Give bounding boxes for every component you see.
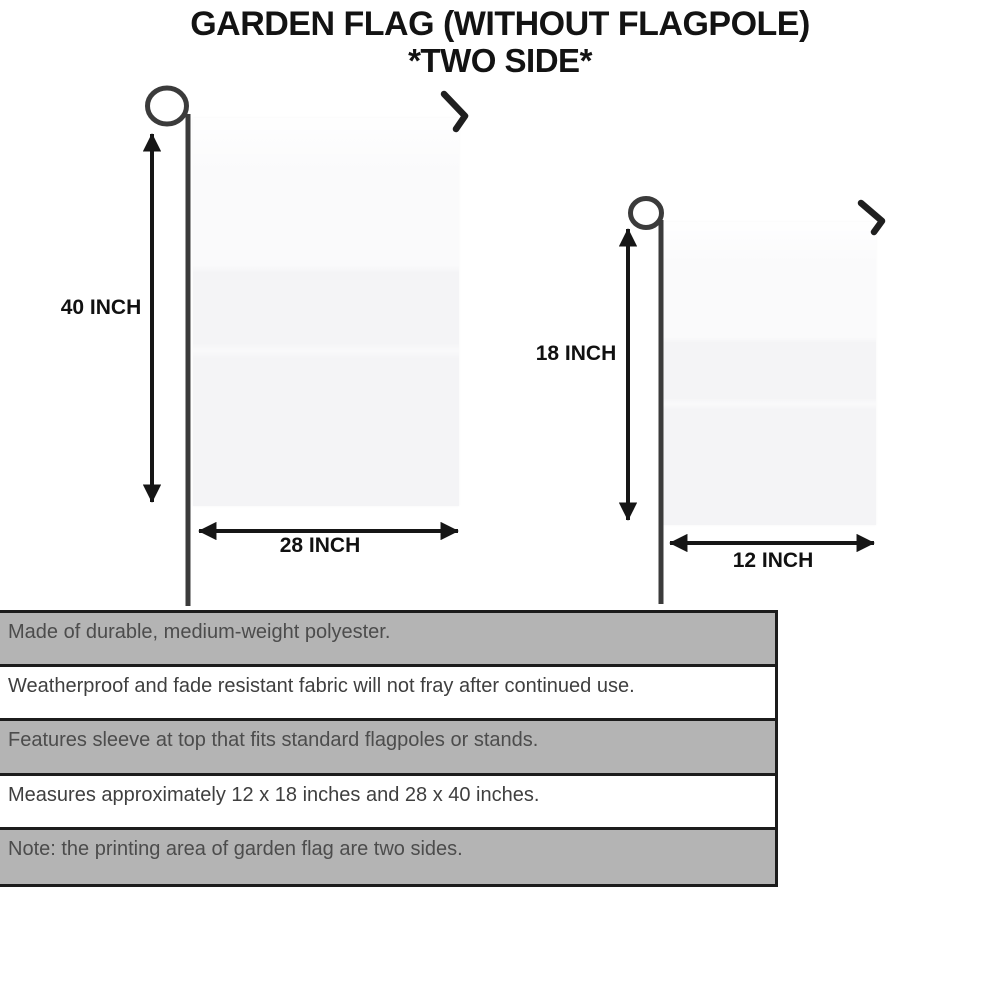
large-height-label: 40 INCH [41, 296, 161, 320]
feature-row-weatherproof: Weatherproof and fade resistant fabric w… [0, 667, 775, 721]
title-line-2: *TWO SIDE* [0, 44, 1000, 78]
product-infographic: GARDEN FLAG (WITHOUT FLAGPOLE) *TWO SIDE… [0, 0, 1000, 1000]
title-line-1: GARDEN FLAG (WITHOUT FLAGPOLE) [0, 4, 1000, 44]
large-width-label: 28 INCH [230, 534, 410, 558]
small-flagpole-icon [631, 199, 662, 605]
feature-row-material: Made of durable, medium-weight polyester… [0, 613, 775, 667]
large-flagpole-icon [148, 88, 189, 606]
page-title: GARDEN FLAG (WITHOUT FLAGPOLE) *TWO SIDE… [0, 4, 1000, 78]
large-flag-panel [193, 118, 459, 506]
small-height-label: 18 INCH [516, 342, 636, 366]
feature-row-sleeve: Features sleeve at top that fits standar… [0, 721, 775, 775]
small-flag-panel [662, 222, 876, 525]
feature-row-note: Note: the printing area of garden flag a… [0, 830, 775, 884]
feature-row-measures: Measures approximately 12 x 18 inches an… [0, 776, 775, 830]
feature-table: Made of durable, medium-weight polyester… [0, 610, 778, 887]
small-width-label: 12 INCH [683, 549, 863, 573]
